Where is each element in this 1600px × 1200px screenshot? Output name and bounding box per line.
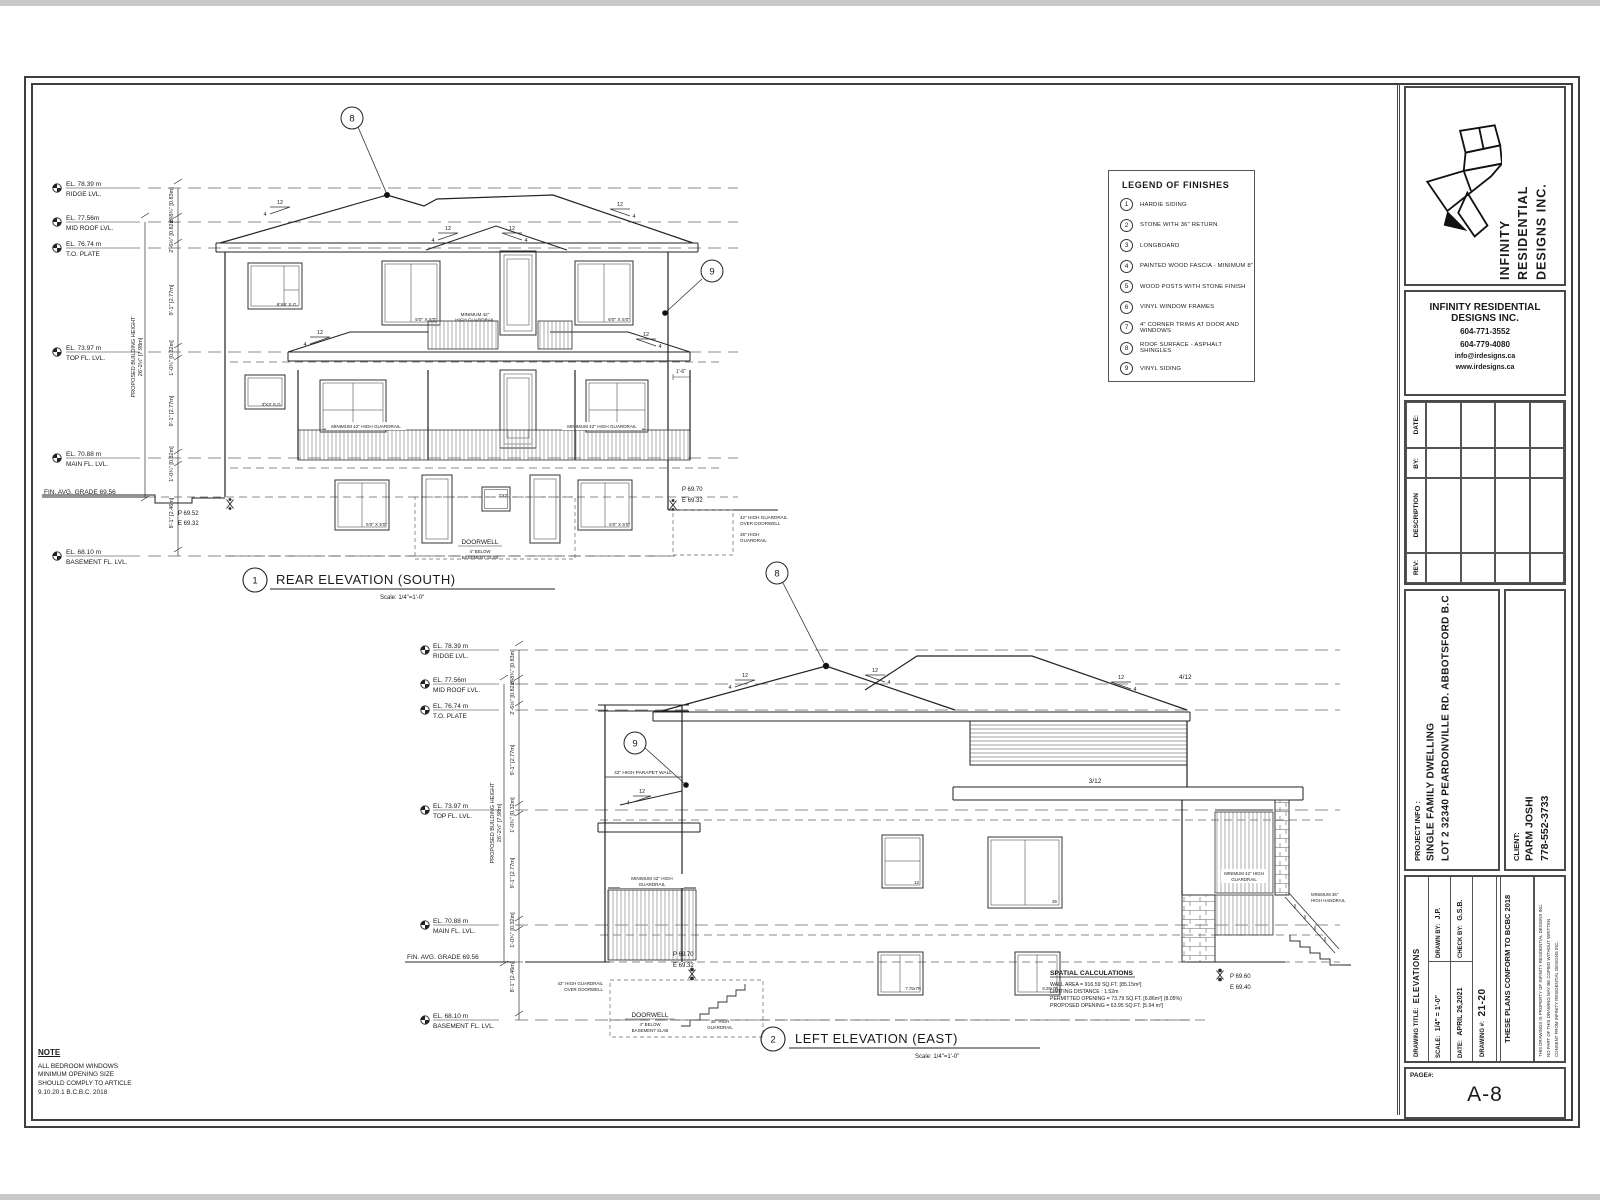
- dim: 1'-0¾" [0.32m]: [169, 446, 175, 482]
- title-num: 2: [770, 1035, 775, 1046]
- lvl-el: EL. 78.39 m: [66, 181, 101, 188]
- legend-num: 7: [1120, 321, 1133, 334]
- dim: 1'-6": [676, 369, 686, 375]
- project-label: PROJECT INFO :: [1412, 599, 1423, 861]
- guardrail-label: GUARDRAIL: [1231, 877, 1257, 882]
- dim: 8'-1" [2.46m]: [169, 497, 175, 528]
- dim: 9'-1" [2.77m]: [169, 284, 175, 315]
- eave-dim: 1'-6": [673, 369, 690, 380]
- basement: 5'0" X 5'0" 3'X2' 5'0" X 5'0" DOORWELL 4…: [225, 475, 675, 560]
- rev-col-by: BY:: [1413, 458, 1420, 469]
- scan-edge-top: [0, 0, 1600, 6]
- rev-cell: [1426, 448, 1461, 478]
- rev-cell: [1495, 478, 1530, 553]
- legend-item: 1HARDIE SIDING: [1120, 198, 1254, 211]
- window-label: 3'X3' S.G.: [262, 402, 282, 407]
- pitch-rise: 12: [317, 330, 323, 336]
- lvl-el: EL. 77.56m: [66, 215, 99, 222]
- rear-elevation-drawing: EL. 78.39 mRIDGE LVL. EL. 77.56mMID ROOF…: [30, 85, 790, 620]
- door: [422, 475, 452, 543]
- contact-name: DESIGNS INC.: [1406, 313, 1564, 324]
- lvl-el: EL. 78.39 m: [433, 643, 468, 650]
- dim-height-value: 26'-2½" [7.98m]: [496, 803, 503, 842]
- pe-label: P 69.70: [682, 487, 703, 493]
- lvl-name: T.O. PLATE: [433, 713, 467, 720]
- title-text: LEFT ELEVATION (EAST): [795, 1031, 958, 1046]
- spatial-line: LIMITING DISTANCE : 1.52m: [1050, 989, 1119, 995]
- pe-label: P 69.70: [673, 952, 694, 958]
- drawing-number-value: 21-20: [1477, 988, 1488, 1016]
- doorwell-sub: 4" BELOW: [639, 1022, 661, 1027]
- window-label: 12: [914, 880, 920, 885]
- contact-phone: 604-771-3552: [1406, 327, 1564, 336]
- drawing-title-label: DRAWING TITLE:: [1414, 1008, 1420, 1057]
- pitch-rise: 12: [277, 200, 283, 206]
- dim-height-label: PROPOSED BUILDING HEIGHT: [490, 782, 496, 864]
- legend-label: ROOF SURFACE - ASPHALT SHINGLES: [1140, 342, 1254, 354]
- project-info-box: PROJECT INFO : SINGLE FAMILY DWELLING LO…: [1404, 589, 1500, 871]
- lvl-el: EL. 76.74 m: [66, 241, 101, 248]
- date-label: DATE:: [1458, 1040, 1464, 1058]
- scale-value: 1/4" = 1'-0": [1435, 995, 1442, 1031]
- company-logo: [1420, 120, 1502, 250]
- legend-label: PAINTED WOOD FASCIA - MINIMUM 8": [1140, 263, 1253, 269]
- pitch-rise: 12: [617, 202, 623, 208]
- spatial-line: PERMITTED OPENING = 73.79 SQ.FT. [6.86m²…: [1050, 996, 1182, 1002]
- company-name-vertical: INFINITY RESIDENTIAL DESIGNS INC.: [1496, 94, 1554, 280]
- roof-outline: [653, 656, 1303, 800]
- scale-label: SCALE:: [1436, 1036, 1442, 1058]
- pitch-run: 4: [1133, 687, 1136, 693]
- rev-cell: [1495, 553, 1530, 583]
- window: 5'0" X 5'0": [335, 480, 389, 530]
- parapet-label: 42" HIGH PARAPET WALL: [614, 770, 672, 776]
- rev-cell: [1530, 402, 1565, 448]
- contact-email: info@irdesigns.ca: [1406, 353, 1564, 360]
- guardrail-label: MINIMUM 42" HIGH: [1224, 871, 1264, 876]
- pitch-run: 4: [431, 238, 434, 244]
- window: 5'0" X 5'0": [382, 261, 440, 325]
- rev-cell: [1495, 402, 1530, 448]
- lvl-el: EL. 73.97 m: [66, 345, 101, 352]
- window-label: 5'0" X 5'0": [366, 522, 387, 527]
- spatial-title: SPATIAL CALCULATIONS: [1050, 970, 1133, 977]
- disclaimer-line: NO PART OF THIS DRAWING MAY BE COPIED WI…: [1545, 881, 1553, 1057]
- legend-item: 4PAINTED WOOD FASCIA - MINIMUM 8": [1120, 260, 1254, 273]
- pitch-run: 4: [632, 214, 635, 220]
- note-line: 9.10.20.1 B.C.B.C. 2018: [38, 1089, 168, 1098]
- dim: 9'-1" [2.77m]: [510, 857, 516, 888]
- lvl-name: BASEMENT FL. LVL.: [66, 559, 128, 566]
- check-by-label: CHECK BY:: [1458, 925, 1464, 958]
- guardrail-label: MINIMUM 42" HIGH: [631, 876, 672, 881]
- rev-col-rev: REV:: [1413, 560, 1420, 575]
- guardrail-label: GUARDRAIL: [639, 882, 666, 887]
- callout-8: 8: [341, 107, 386, 192]
- legend-num: 8: [1120, 342, 1133, 355]
- dimension-texts: PROPOSED BUILDING HEIGHT 26'-2½" [7.98m]…: [490, 649, 516, 993]
- lvl-name: MID ROOF LVL.: [66, 225, 113, 232]
- second-floor-openings: 6'X6' S.G. 5'0" X 5'0" 6'0" X 5'0" MINIM…: [248, 251, 633, 349]
- callout-num: 9: [632, 739, 637, 750]
- lvl-name: MAIN FL. LVL.: [433, 928, 475, 935]
- pe-label: E 69.32: [682, 498, 703, 504]
- lvl-el: EL. 70.88 m: [433, 918, 468, 925]
- disclaimer-box: THIS DRAWINGS IS PROPERTY OF INFINITY RE…: [1534, 877, 1569, 1061]
- lvl-name: BASEMENT FL. LVL.: [433, 1023, 495, 1030]
- window: 36: [988, 837, 1062, 908]
- window-label: 6'X6' S.G.: [277, 302, 298, 308]
- legend-num: 1: [1120, 198, 1133, 211]
- lvl-el: EL. 77.56m: [433, 677, 466, 684]
- company-line: RESIDENTIAL: [1514, 94, 1532, 280]
- pe-label: E 69.40: [1230, 985, 1251, 991]
- rev-cell: [1461, 448, 1496, 478]
- drawing-number-label: DRAWING #:: [1480, 1021, 1486, 1057]
- dim: 2'-6½" [0.82m]: [168, 217, 175, 253]
- lvl-el: EL. 68.10 m: [433, 1013, 468, 1020]
- handrail-label: HIGH HANDRAIL: [1311, 898, 1346, 903]
- window-label: 36: [1052, 899, 1058, 904]
- legend-item: 3LONGBOARD: [1120, 239, 1254, 252]
- window: 3'X2': [482, 487, 510, 511]
- pitch-run: 4: [887, 680, 890, 686]
- legend-num: 5: [1120, 280, 1133, 293]
- drawn-by-label: DRAWN BY:: [1436, 924, 1442, 958]
- conform-text: THESE PLANS CONFORM TO BCBC 2018: [1501, 877, 1533, 1061]
- guardrail-label: MINIMUM 42": [461, 312, 490, 317]
- dim: 1'-0¾" [0.32m]: [510, 797, 516, 833]
- conform-box: THESE PLANS CONFORM TO BCBC 2018: [1500, 877, 1534, 1061]
- dim-height-value: 26'-2½" [7.98m]: [137, 337, 144, 376]
- pitch-marker-tower: 124: [626, 789, 651, 807]
- guardrail-label: HIGH GUARDRAIL: [455, 318, 495, 323]
- stair-tower: 42" HIGH PARAPET WALL MINIMUM 42" HIGH G…: [598, 705, 700, 962]
- window: 6'0" X 5'0": [575, 261, 633, 325]
- dim: 1'-0¾" [0.32m]: [510, 912, 516, 948]
- disclaimer-line: CONSENT FROM INFINITY RESIDENTIAL DESIGN…: [1553, 881, 1561, 1057]
- lvl-el: EL. 68.10 m: [66, 549, 101, 556]
- guardrail-note: OVER DOORWELL: [740, 521, 781, 526]
- legend-num: 6: [1120, 301, 1133, 314]
- rev-cell: [1495, 448, 1530, 478]
- strip-date-check: CHECK BY: G.S.B. DATE: APRIL 26,2021: [1450, 877, 1473, 1061]
- titleblock-divider: [1397, 85, 1400, 1115]
- pitch-run: 4: [626, 801, 629, 807]
- title-num: 1: [252, 576, 257, 587]
- lvl-name: MID ROOF LVL.: [433, 687, 480, 694]
- lvl-name: RIDGE LVL.: [433, 653, 468, 660]
- rev-cell: [1426, 553, 1461, 583]
- contact-name: INFINITY RESIDENTIAL: [1406, 302, 1564, 313]
- titleblock-contact-box: INFINITY RESIDENTIAL DESIGNS INC. 604-77…: [1404, 290, 1566, 396]
- callout-num: 8: [349, 114, 354, 125]
- pitch-rise: 12: [509, 226, 515, 232]
- window: 6'X6' S.G.: [248, 263, 302, 309]
- pe-label: P 69.52: [178, 511, 199, 517]
- note-block: NOTE ALL BEDROOM WINDOWS MINIMUM OPENING…: [38, 1048, 168, 1097]
- drawing-info-box: DRAWING TITLE: ELEVATIONS DRAWN BY: J.P.…: [1404, 875, 1566, 1063]
- callout-9: 9: [662, 260, 723, 316]
- guardrail-note: OVER DOORWELL: [564, 987, 603, 992]
- window: 5'0" X 5'0": [578, 480, 632, 530]
- company-line: INFINITY: [1496, 94, 1514, 280]
- window-label: 5'0" X 5'0": [609, 522, 630, 527]
- callout-num: 9: [709, 267, 714, 278]
- window: 3'X3' S.G.: [245, 375, 285, 409]
- legend-num: 3: [1120, 239, 1133, 252]
- rev-cell: [1530, 553, 1565, 583]
- drawing-title-2: 2 LEFT ELEVATION (EAST) Scale: 1/4"=1'-0…: [761, 1027, 1040, 1060]
- pitch-rise: 12: [445, 226, 451, 232]
- lvl-name: TOP FL. LVL.: [66, 355, 105, 362]
- callout-9: 9: [624, 732, 689, 788]
- left-elevation-drawing: EL. 78.39 mRIDGE LVL. EL. 77.56mMID ROOF…: [395, 555, 1355, 1067]
- spatial-line: PROPOSED OPENING = 63.95 SQ.FT. [5.94 m²…: [1050, 1003, 1164, 1009]
- rev-col-description: DESCRIPTION: [1413, 493, 1420, 537]
- legend-num: 4: [1120, 260, 1133, 273]
- lvl-name: RIDGE LVL.: [66, 191, 101, 198]
- lvl-el: EL. 70.88 m: [66, 451, 101, 458]
- callout-num: 8: [774, 569, 779, 580]
- spatial-calculations: SPATIAL CALCULATIONS WALL AREA = 916.59 …: [1050, 970, 1182, 1009]
- guardrail-note: 42" HIGH GUARDRAIL: [740, 515, 788, 520]
- note-line: SHOULD COMPLY TO ARTICLE: [38, 1080, 168, 1089]
- check-by-value: G.S.B.: [1457, 900, 1464, 921]
- legend-label: 4" CORNER TRIMS AT DOOR AND WINDOWS: [1140, 322, 1254, 334]
- guardrail-note: GUARDRAIL: [707, 1025, 733, 1030]
- spatial-line: WALL AREA = 916.59 SQ.FT. [85.15m²]: [1050, 982, 1142, 988]
- rev-cell: [1530, 448, 1565, 478]
- dim: 2'-6½" [0.82m]: [509, 679, 516, 715]
- scan-edge-bottom: [0, 1194, 1600, 1200]
- legend-item: 5WOOD POSTS WITH STONE FINISH: [1120, 280, 1254, 293]
- pitch-run: 4: [728, 685, 731, 691]
- strip-scale-drawn: DRAWN BY: J.P. SCALE: 1/4" = 1'-0": [1428, 877, 1451, 1061]
- drawing-sheet: EL. 78.39 mRIDGE LVL. EL. 77.56mMID ROOF…: [0, 0, 1600, 1200]
- main-floor-openings: 3'X3' S.G. MINIMUM 42" HIGH GUARDRAIL MI…: [245, 370, 690, 460]
- balcony-door: [500, 251, 536, 335]
- guardrail-note: 36" HIGH: [740, 532, 760, 537]
- contact-web: www.irdesigns.ca: [1406, 364, 1564, 371]
- rev-cell: [1530, 478, 1565, 553]
- pe-label: P 69.60: [1230, 974, 1251, 980]
- page-number-box: PAGE#: A-8: [1404, 1067, 1566, 1119]
- project-line: LOT 2 32340 PEARDONVILLE RD. ABBOTSFORD …: [1438, 599, 1453, 861]
- dim: 8'-1" [2.46m]: [510, 961, 516, 992]
- legend-num: 2: [1120, 219, 1133, 232]
- dim: 9'-1" [2.77m]: [510, 744, 516, 775]
- legend-label: LONGBOARD: [1140, 243, 1179, 249]
- window-label: 7.75x7R: [905, 986, 921, 991]
- window: 12: [882, 835, 923, 888]
- doorwell-sub: 4" BELOW: [469, 549, 491, 554]
- pitch-rise: 12: [872, 668, 878, 674]
- legend-title: LEGEND OF FINISHES: [1122, 180, 1254, 190]
- legend-item: 6VINYL WINDOW FRAMES: [1120, 301, 1254, 314]
- legend-label: HARDIE SIDING: [1140, 202, 1187, 208]
- guardrail-note: GUARDRAIL: [740, 538, 767, 543]
- guardrail-label: MINIMUM 42" HIGH GUARDRAIL: [567, 424, 637, 429]
- pitch-run: 4: [658, 344, 661, 350]
- lvl-name: TOP FL. LVL.: [433, 813, 472, 820]
- pitch-run: 4: [263, 212, 266, 218]
- lvl-name: T.O. PLATE: [66, 251, 100, 258]
- rev-cell: [1426, 402, 1461, 448]
- dimension-texts: PROPOSED BUILDING HEIGHT 26'-2½" [7.98m]…: [131, 187, 175, 529]
- legend-label: WOOD POSTS WITH STONE FINISH: [1140, 284, 1246, 290]
- rev-cell: [1426, 478, 1461, 553]
- client-box: CLIENT: PARM JOSHI 778-552-3733: [1504, 589, 1566, 871]
- pitch-rise: 12: [742, 673, 748, 679]
- legend-label: VINYL WINDOW FRAMES: [1140, 304, 1214, 310]
- dim: 9'-1" [2.77m]: [169, 395, 175, 426]
- disclaimer-line: THIS DRAWINGS IS PROPERTY OF INFINITY RE…: [1537, 881, 1545, 1057]
- lvl-el: EL. 73.97 m: [433, 803, 468, 810]
- walls: [225, 252, 690, 510]
- porch-guardrail: MINIMUM 42" HIGH GUARDRAIL MINIMUM 42" H…: [298, 370, 690, 460]
- dim-height-label: PROPOSED BUILDING HEIGHT: [131, 316, 137, 398]
- guardrail-label: MINIMUM 42" HIGH GUARDRAIL: [331, 424, 401, 429]
- doorwell-outline: [415, 497, 575, 559]
- client-name: PARM JOSHI: [1522, 599, 1538, 861]
- doorwell-label: DOORWELL: [461, 539, 498, 546]
- rev-cell: [1461, 478, 1496, 553]
- date-value: APRIL 26,2021: [1457, 988, 1464, 1036]
- note-line: ALL BEDROOM WINDOWS: [38, 1063, 168, 1072]
- handrail-label: MINIMUM 36": [1311, 892, 1339, 897]
- note-title: NOTE: [38, 1048, 168, 1059]
- legend-item: 2STONE WITH 36" RETURN: [1120, 219, 1254, 232]
- guardrail-note: 42" HIGH GUARDRAIL: [558, 981, 604, 986]
- pitch-312: 3/12: [1089, 778, 1102, 785]
- legend-item: 8ROOF SURFACE - ASPHALT SHINGLES: [1120, 342, 1254, 355]
- doorwell-sub: BASEMENT SLAB: [632, 1028, 669, 1033]
- drawn-by-value: J.P.: [1435, 908, 1442, 920]
- client-label: CLIENT:: [1511, 599, 1522, 861]
- project-line: SINGLE FAMILY DWELLING: [1423, 599, 1438, 861]
- lvl-name: MAIN FL. LVL.: [66, 461, 108, 468]
- pitch-markers: 124 124 124: [728, 668, 1136, 693]
- pitch-run: 4: [524, 238, 527, 244]
- title-scale: Scale: 1/4"=1'-0": [915, 1054, 959, 1060]
- revision-table: DATE: BY: DESCRIPTION REV:: [1404, 400, 1566, 585]
- pitch-rise: 12: [639, 789, 645, 795]
- rev-col-date: DATE:: [1413, 415, 1420, 434]
- strip-drawing-number: DRAWING #: 21-20: [1472, 877, 1497, 1061]
- contact-phone: 604-779-4080: [1406, 340, 1564, 349]
- company-line: DESIGNS INC.: [1532, 94, 1550, 280]
- page-label: PAGE#:: [1410, 1072, 1434, 1079]
- titleblock-logo-box: INFINITY RESIDENTIAL DESIGNS INC.: [1404, 86, 1566, 286]
- dim: 1'-0¾" [0.32m]: [169, 340, 175, 376]
- doorwell-label: DOORWELL: [631, 1012, 668, 1019]
- callout-8: 8: [766, 562, 824, 663]
- note-line: MINIMUM OPENING SIZE: [38, 1071, 168, 1080]
- page-number: A-8: [1406, 1083, 1564, 1107]
- legend-num: 9: [1120, 362, 1133, 375]
- rev-cell: [1461, 402, 1496, 448]
- lvl-grade: FIN. AVG. GRADE 69.56: [407, 954, 479, 961]
- dimension-lines: [141, 179, 182, 556]
- lvl-el: EL. 76.74 m: [433, 703, 468, 710]
- drawing-title-value: ELEVATIONS: [1412, 948, 1421, 1003]
- window-label: 6'0" X 5'0": [608, 317, 630, 323]
- pitch-rise: 12: [1118, 675, 1124, 681]
- strip-drawing-title: DRAWING TITLE: ELEVATIONS: [1406, 877, 1429, 1061]
- client-phone: 778-552-3733: [1538, 599, 1554, 861]
- pe-label: E 69.32: [178, 521, 199, 527]
- legend-item: 74" CORNER TRIMS AT DOOR AND WINDOWS: [1120, 321, 1254, 334]
- legend-item: 9VINYL SIDING: [1120, 362, 1254, 375]
- legend-of-finishes: LEGEND OF FINISHES 1HARDIE SIDING 2STONE…: [1108, 170, 1255, 382]
- project-client-box: PROJECT INFO : SINGLE FAMILY DWELLING LO…: [1404, 589, 1566, 871]
- rev-cell: [1461, 553, 1496, 583]
- pitch-412: 4/12: [1179, 674, 1192, 681]
- basement-window: 7.75x7R: [878, 952, 923, 995]
- main-windows: 12 36 7.75x7R 8.29x7R: [878, 835, 1062, 995]
- legend-label: STONE WITH 36" RETURN: [1140, 222, 1218, 228]
- legend-label: VINYL SIDING: [1140, 366, 1181, 372]
- door: [530, 475, 560, 543]
